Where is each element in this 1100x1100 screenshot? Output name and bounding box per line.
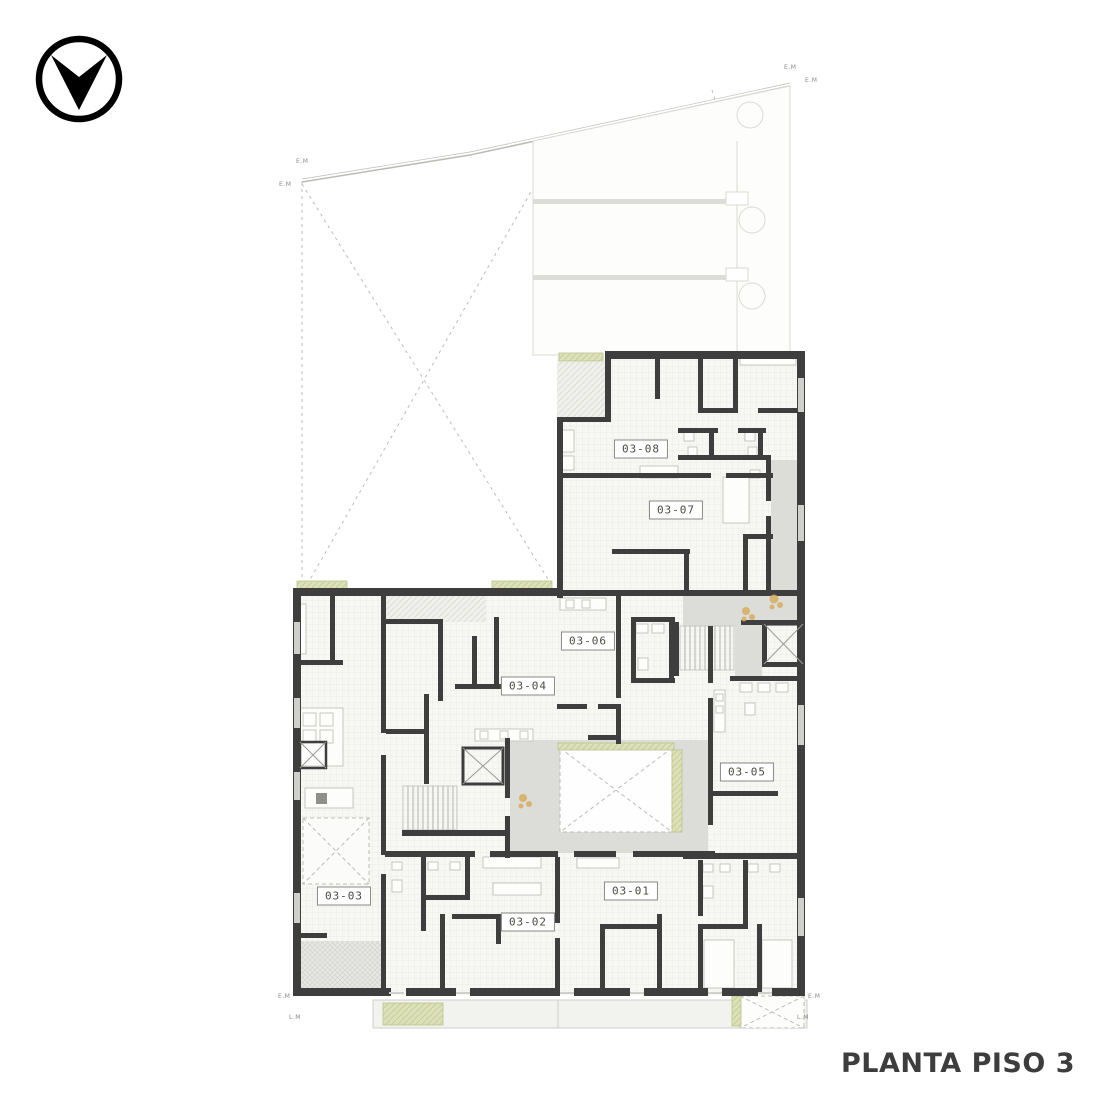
unit-label-03-01: 03-01 [604,882,658,901]
boundary-marker: E.M [279,181,291,188]
unit-label-03-06: 03-06 [561,632,615,651]
boundary-marker: E.M [784,64,796,71]
unit-label-03-02: 03-02 [501,913,555,932]
boundary-marker: L.M [797,1014,809,1021]
unit-label-03-08: 03-08 [614,440,668,459]
boundary-marker: L.M [289,1014,301,1021]
sheet: 03-01 03-02 03-03 03-04 03-05 03-06 03-0… [0,0,1100,1100]
boundary-marker: E.M [805,77,817,84]
floor-plan [0,0,1100,1100]
unit-label-03-04: 03-04 [501,677,555,696]
unit-label-03-07: 03-07 [649,501,703,520]
boundary-marker: E.M [296,158,308,165]
sheet-title: PLANTA PISO 3 [841,1048,1075,1079]
boundary-marker: E.M [808,993,820,1000]
unit-label-03-03: 03-03 [317,887,371,906]
neighbor-structure [533,86,790,355]
unit-label-03-05: 03-05 [720,763,774,782]
boundary-marker: E.M [278,993,290,1000]
